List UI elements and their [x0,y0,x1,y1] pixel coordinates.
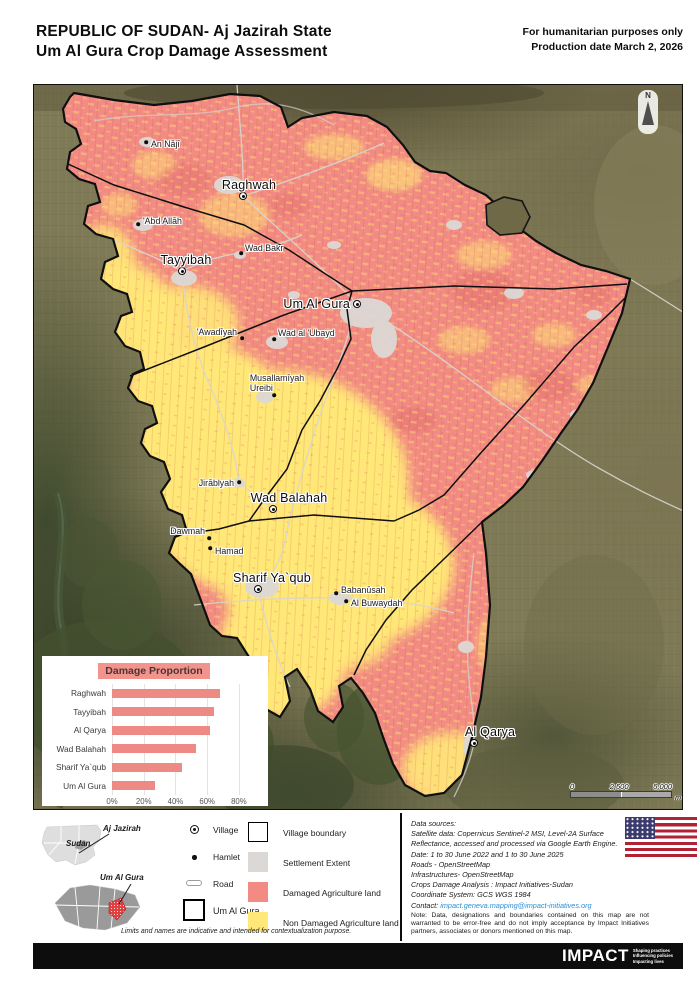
us-flag-icon [625,817,697,857]
um-al-gura-leader-line [117,883,133,905]
damaged-land-swatch [248,882,268,902]
impact-logo: IMPACT [562,946,629,966]
scale-bar: 0 2,500 5,000 m [570,782,672,798]
chart-category-label: Um Al Gura [48,781,112,791]
chart-tick-label: 60% [199,797,215,806]
village-icon [190,825,199,834]
village-boundary-swatch [248,822,268,842]
legend-village-label: Village [213,825,238,835]
chart-tick-label: 0% [106,797,117,806]
damaged-land-label: Damaged Agriculture land [283,888,381,898]
um-al-gura-inset-map [45,881,149,935]
impact-tagline: Shaping practices Influencing policies I… [633,948,673,964]
village-boundary-label: Village boundary [283,828,346,838]
chart-row: Um Al Gura [48,777,260,796]
chart-tick-label: 80% [231,797,247,806]
road-icon [186,880,202,886]
chart-row: Raghwah [48,684,260,703]
chart-category-label: Raghwah [48,688,112,698]
source-line: Roads - OpenStreetMap [411,860,625,870]
scale-tick-1: 2,500 [610,782,629,791]
title-line-1: REPUBLIC OF SUDAN- Aj Jazirah State [36,22,332,42]
data-sources: Data sources: Satellite data: Copernicus… [411,819,625,936]
map-canvas: RaghwahTayyibahUm Al GuraWad BalahahShar… [33,84,683,810]
source-line: Data sources: [411,819,625,829]
chart-bar [112,744,196,753]
chart-bars: RaghwahTayyibahAl QaryaWad BalahahSharif… [48,684,260,795]
legend-note: Limits and names are indicative and inte… [121,928,351,935]
footer-bar: IMPACT Shaping practices Influencing pol… [33,943,683,969]
chart-title: Damage Proportion [98,663,209,679]
chart-category-label: Sharif Ya`qub [48,762,112,772]
chart-tick-label: 40% [168,797,184,806]
chart-category-label: Al Qarya [48,725,112,735]
settlement-extent-swatch [248,852,268,872]
north-label: N [638,90,658,101]
um-al-gura-boundary-icon [183,899,205,921]
header-right-note: For humanitarian purposes only Productio… [523,25,683,55]
legend-road-label: Road [213,879,233,889]
scale-tick-2: 5,000 [653,782,672,791]
source-line: Reflectance, accessed and processed via … [411,839,625,849]
sudan-inset-label: Sudan [66,839,90,848]
legend-hamlet-label: Hamlet [213,852,240,862]
chart-bar [112,726,210,735]
chart-bar [112,763,182,772]
chart-row: Wad Balahah [48,740,260,759]
excluded-area [486,197,530,235]
source-line: Date: 1 to 30 June 2022 and 1 to 30 June… [411,850,625,860]
title-line-2: Um Al Gura Crop Damage Assessment [36,42,332,62]
legend: Aj Jazirah Sudan Um Al Gura Village Haml… [33,815,683,941]
source-line: Coordinate System: GCS WGS 1984 [411,890,625,900]
chart-axis-ticks: 0%20%40%60%80% [112,797,250,808]
hamlet-icon [192,855,197,860]
disclaimer-note: Note: Data, designations and boundaries … [411,912,649,937]
settlement-extent-label: Settlement Extent [283,858,350,868]
production-date: Production date March 2, 2026 [523,40,683,55]
non-damaged-land-label: Non Damaged Agriculture land [283,918,399,928]
source-line: Infrastructures- OpenStreetMap [411,870,625,880]
chart-category-label: Tayyibah [48,707,112,717]
page: REPUBLIC OF SUDAN- Aj Jazirah State Um A… [0,0,700,990]
purpose-note: For humanitarian purposes only [523,25,683,40]
chart-row: Tayyibah [48,703,260,722]
scale-unit: m [675,795,681,802]
chart-tick-label: 20% [136,797,152,806]
contact-line: Contact: impact.geneva.mapping@impact-in… [411,901,625,911]
chart-row: Sharif Ya`qub [48,758,260,777]
chart-bar [112,781,155,790]
north-arrow-icon: N [638,90,658,134]
contact-label: Contact: [411,901,440,910]
legend-divider [400,813,402,941]
scale-tick-0: 0 [570,782,574,791]
um-al-gura-inset-label: Um Al Gura [100,873,144,882]
page-title: REPUBLIC OF SUDAN- Aj Jazirah State Um A… [36,22,332,63]
source-line: Crops Damage Analysis : Impact Initiativ… [411,880,625,890]
chart-bar [112,707,214,716]
chart-row: Al Qarya [48,721,260,740]
contact-email-link[interactable]: impact.geneva.mapping@impact-initiatives… [440,901,591,910]
chart-category-label: Wad Balahah [48,744,112,754]
aj-jazirah-inset-label: Aj Jazirah [103,824,141,833]
damage-proportion-chart: Damage Proportion RaghwahTayyibahAl Qary… [42,656,268,806]
chart-bar [112,689,220,698]
source-line: Satellite data: Copernicus Sentinel-2 MS… [411,829,625,839]
